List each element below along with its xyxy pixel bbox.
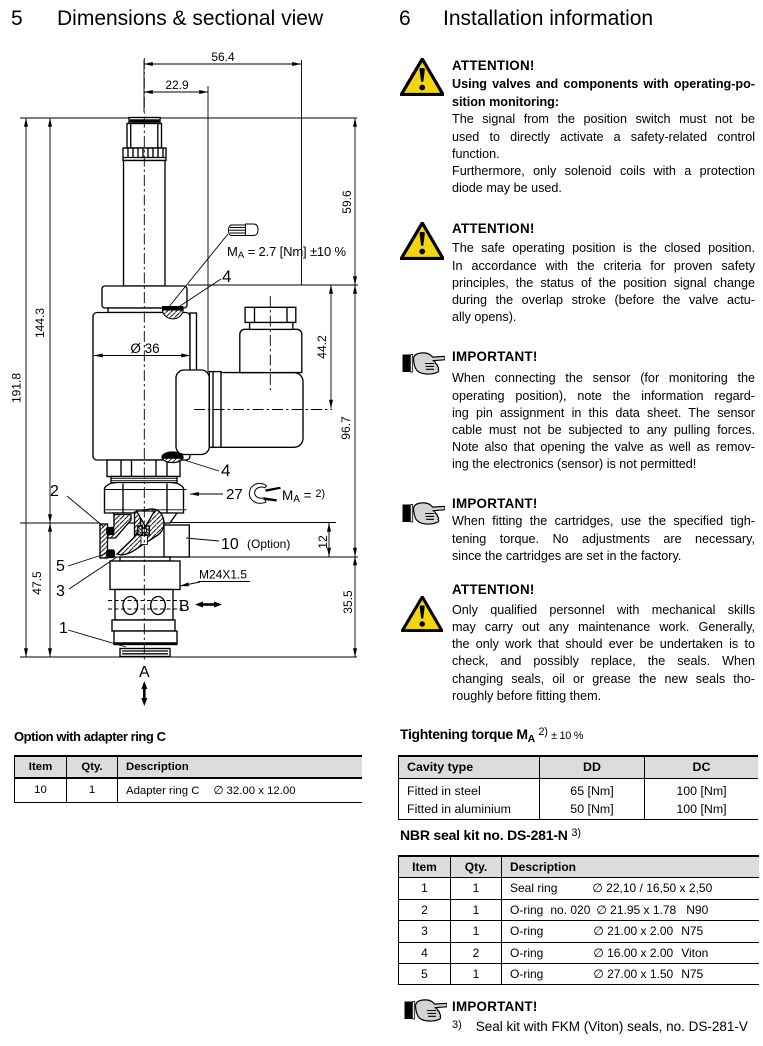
svg-text:4: 4 <box>222 267 231 286</box>
svg-text:44.2: 44.2 <box>315 335 329 359</box>
svg-text:35.5: 35.5 <box>341 590 355 614</box>
svg-text:10: 10 <box>221 536 239 553</box>
svg-text:3: 3 <box>56 583 65 600</box>
svg-text:1: 1 <box>59 620 68 637</box>
svg-text:56.4: 56.4 <box>211 50 235 64</box>
svg-text:144.3: 144.3 <box>33 308 47 338</box>
svg-text:12: 12 <box>316 535 330 549</box>
svg-text:22.9: 22.9 <box>165 78 189 92</box>
svg-text:(Option): (Option) <box>247 537 290 551</box>
svg-text:4: 4 <box>221 461 230 480</box>
svg-text:MA = 2): MA = 2) <box>282 488 325 505</box>
svg-text:96.7: 96.7 <box>339 416 353 440</box>
svg-text:191.8: 191.8 <box>10 373 24 403</box>
svg-text:59.6: 59.6 <box>340 190 354 214</box>
svg-text:M24X1.5: M24X1.5 <box>199 568 247 582</box>
svg-text:47.5: 47.5 <box>30 571 44 595</box>
svg-text:A: A <box>139 664 150 681</box>
svg-text:27: 27 <box>226 486 243 503</box>
svg-text:B: B <box>179 598 190 615</box>
svg-text:Ø 36: Ø 36 <box>130 341 159 356</box>
svg-text:2: 2 <box>50 483 59 500</box>
svg-text:5: 5 <box>56 558 65 575</box>
svg-text:MA = 2.7 [Nm] ±10 %: MA = 2.7 [Nm] ±10 % <box>227 244 347 261</box>
